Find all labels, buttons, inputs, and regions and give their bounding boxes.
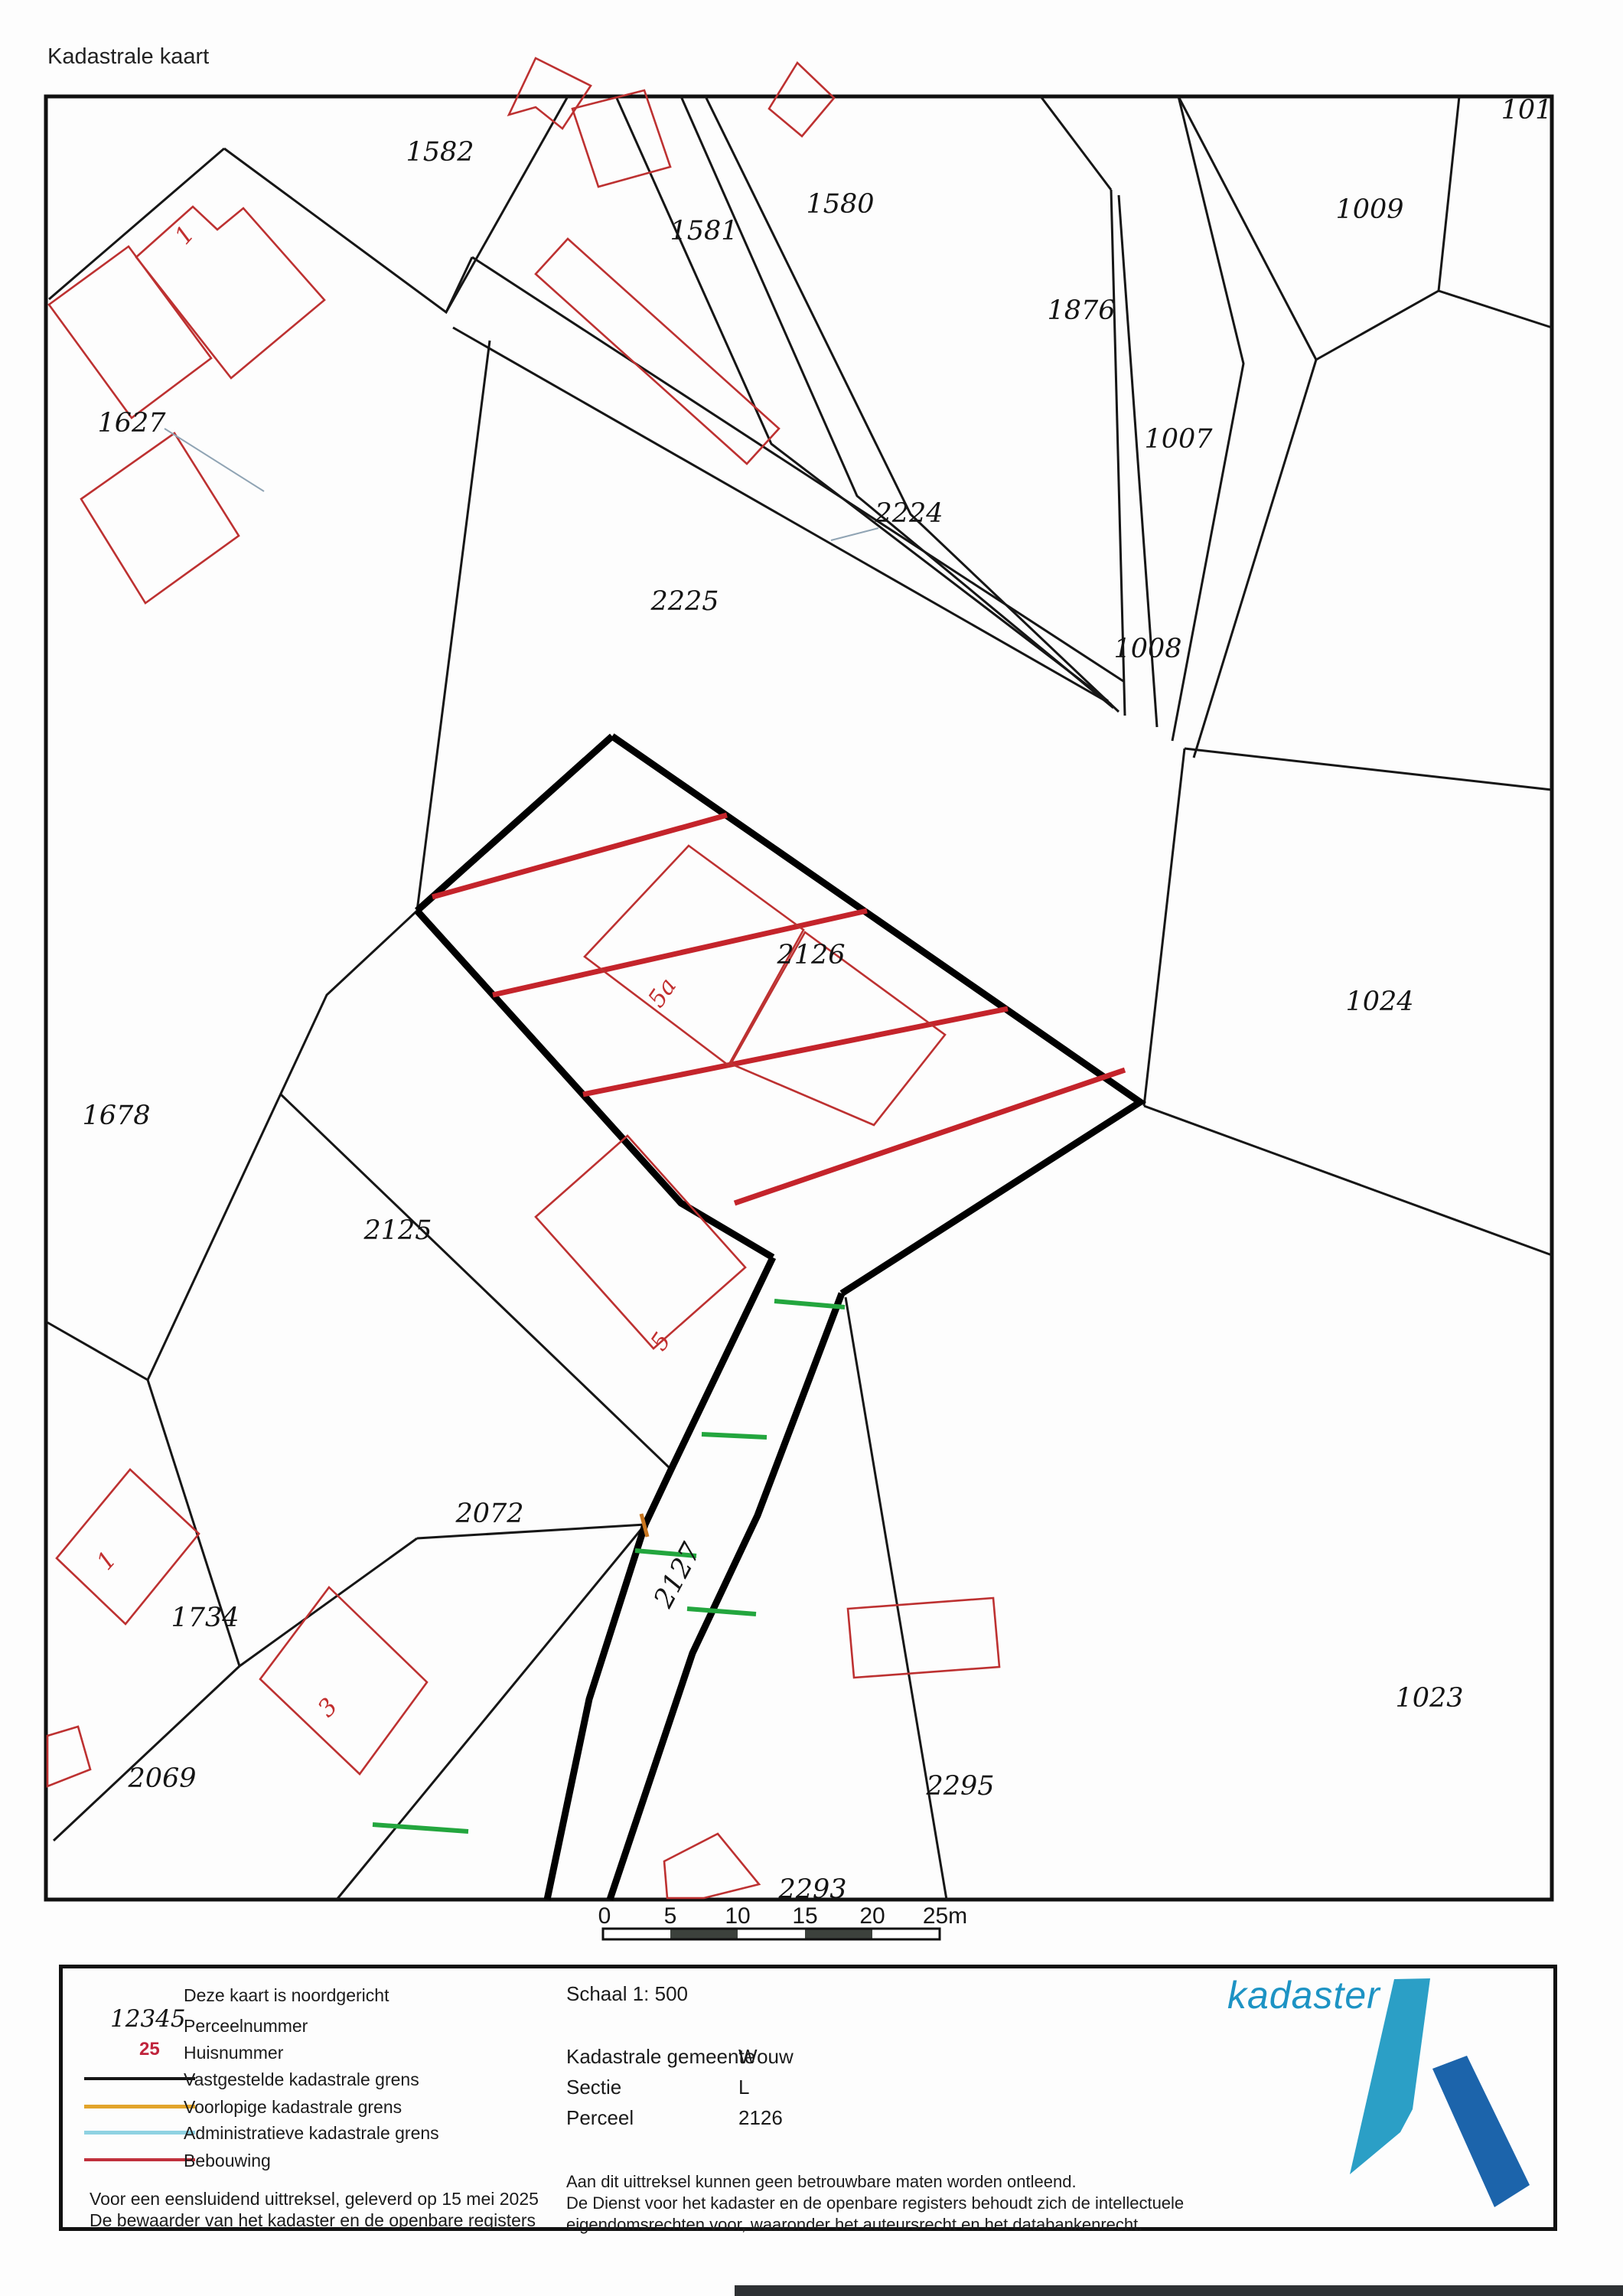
legend-line-lightblue [84,2131,195,2135]
scale-text: Schaal 1: 500 [566,1982,688,2006]
legend-line-red [84,2158,195,2161]
disclaimer-line1: Aan dit uittreksel kunnen geen betrouwba… [566,2172,1077,2192]
scale-label-15: 15 [792,1903,817,1929]
legend-footer-line2: De bewaarder van het kadaster en de open… [90,2210,536,2231]
legend-administrative-label: Administratieve kadastrale grens [184,2123,439,2144]
scan-edge-bar [735,2285,1623,2296]
parcel-label-1007: 1007 [1144,424,1213,455]
legend-established-row: Vastgestelde kadastrale grens [184,2068,419,2091]
scale-label-5: 5 [664,1903,677,1929]
map-canvas: 1582 1581 1580 1876 1009 1007 1627 2224 … [0,0,1623,2296]
gemeente-value: Wouw [738,2045,794,2069]
scale-label-10: 10 [725,1903,750,1929]
legend-provisional-label: Voorlopige kadastrale grens [184,2097,402,2118]
house-number-3: 3 [313,1693,344,1723]
parcel-label-1582: 1582 [406,137,474,168]
kadaster-wordmark: kadaster [1227,1973,1380,2017]
parcel-label-2126: 2126 [776,940,845,970]
scale-bar-labels: 0 5 10 15 20 25m [598,1903,968,1929]
sectie-label: Sectie [566,2076,621,2099]
legend-administrative-row: Administratieve kadastrale grens [184,2122,439,2144]
legend-housenumber-label: Huisnummer [184,2043,283,2063]
legend-parcelnumber-symbol: 12345 [110,2005,186,2033]
legend-parcelnumber-row: Perceelnummer [184,2014,308,2037]
parcel-label-2224: 2224 [874,498,943,529]
parcel-label-1581: 1581 [670,216,738,246]
parcel-label-2225: 2225 [650,586,719,617]
parcel-label-2072: 2072 [455,1499,523,1529]
map-frame [46,96,1552,1900]
legend-line-orange [84,2105,195,2108]
perceel-label: Perceel [566,2106,634,2130]
scale-label-20: 20 [859,1903,885,1929]
parcel-label-2069: 2069 [127,1763,196,1794]
legend-housenumber-symbol: 25 [139,2039,160,2060]
green-boundary-marks [373,1301,845,1831]
parcel-label-2295: 2295 [925,1771,994,1802]
legend-bebouwing-label: Bebouwing [184,2151,271,2171]
cadastral-map-page: Kadastrale kaart [0,0,1623,2296]
legend-north-note-row: Deze kaart is noordgericht [184,1984,389,2007]
perceel-value: 2126 [738,2106,783,2130]
parcel-label-1024: 1024 [1345,987,1413,1017]
established-boundary-lines [47,96,1552,1900]
parcel-label-2125: 2125 [363,1215,432,1246]
legend-footer-line1: Voor een eensluidend uittreksel, gelever… [90,2189,539,2210]
legend-housenumber-row: Huisnummer [184,2041,283,2064]
parcel-label-1876: 1876 [1047,295,1115,326]
north-note: Deze kaart is noordgericht [184,1985,389,2006]
gemeente-label: Kadastrale gemeente [566,2045,755,2069]
parcel-label-1009: 1009 [1335,194,1403,225]
disclaimer-line3: eigendomsrechten voor, waaronder het aut… [566,2215,1142,2235]
parcel-label-1734: 1734 [171,1603,239,1633]
legend-provisional-row: Voorlopige kadastrale grens [184,2095,402,2118]
disclaimer-line2: De Dienst voor het kadaster en de openba… [566,2193,1184,2213]
legend-established-label: Vastgestelde kadastrale grens [184,2069,419,2090]
scale-label-25m: 25m [923,1903,967,1929]
parcel-label-1023: 1023 [1395,1683,1463,1714]
red-hatch-lines [432,815,1125,1203]
parcel-label-1627: 1627 [97,408,166,439]
sectie-value: L [738,2076,749,2099]
parcel-label-1008: 1008 [1113,634,1181,664]
house-number-1-bottom: 1 [92,1546,122,1576]
legend-bebouwing-row: Bebouwing [184,2149,271,2172]
legend-line-black [84,2077,195,2080]
scale-label-0: 0 [598,1903,611,1929]
parcel-labels: 1582 1581 1580 1876 1009 1007 1627 2224 … [82,95,1552,1905]
parcel-label-1580: 1580 [806,189,874,220]
parcel-label-1678: 1678 [82,1101,150,1131]
house-number-5a: 5a [643,973,682,1013]
house-number-1-top: 1 [170,220,200,250]
parcel-label-101-clipped: 101 [1501,95,1553,126]
scale-bar: 0 5 10 15 20 25m [598,1903,968,1939]
legend-parcelnumber-label: Perceelnummer [184,2016,308,2037]
parcel-label-2127: 2127 [648,1538,708,1613]
parcel-label-2293: 2293 [777,1874,846,1905]
